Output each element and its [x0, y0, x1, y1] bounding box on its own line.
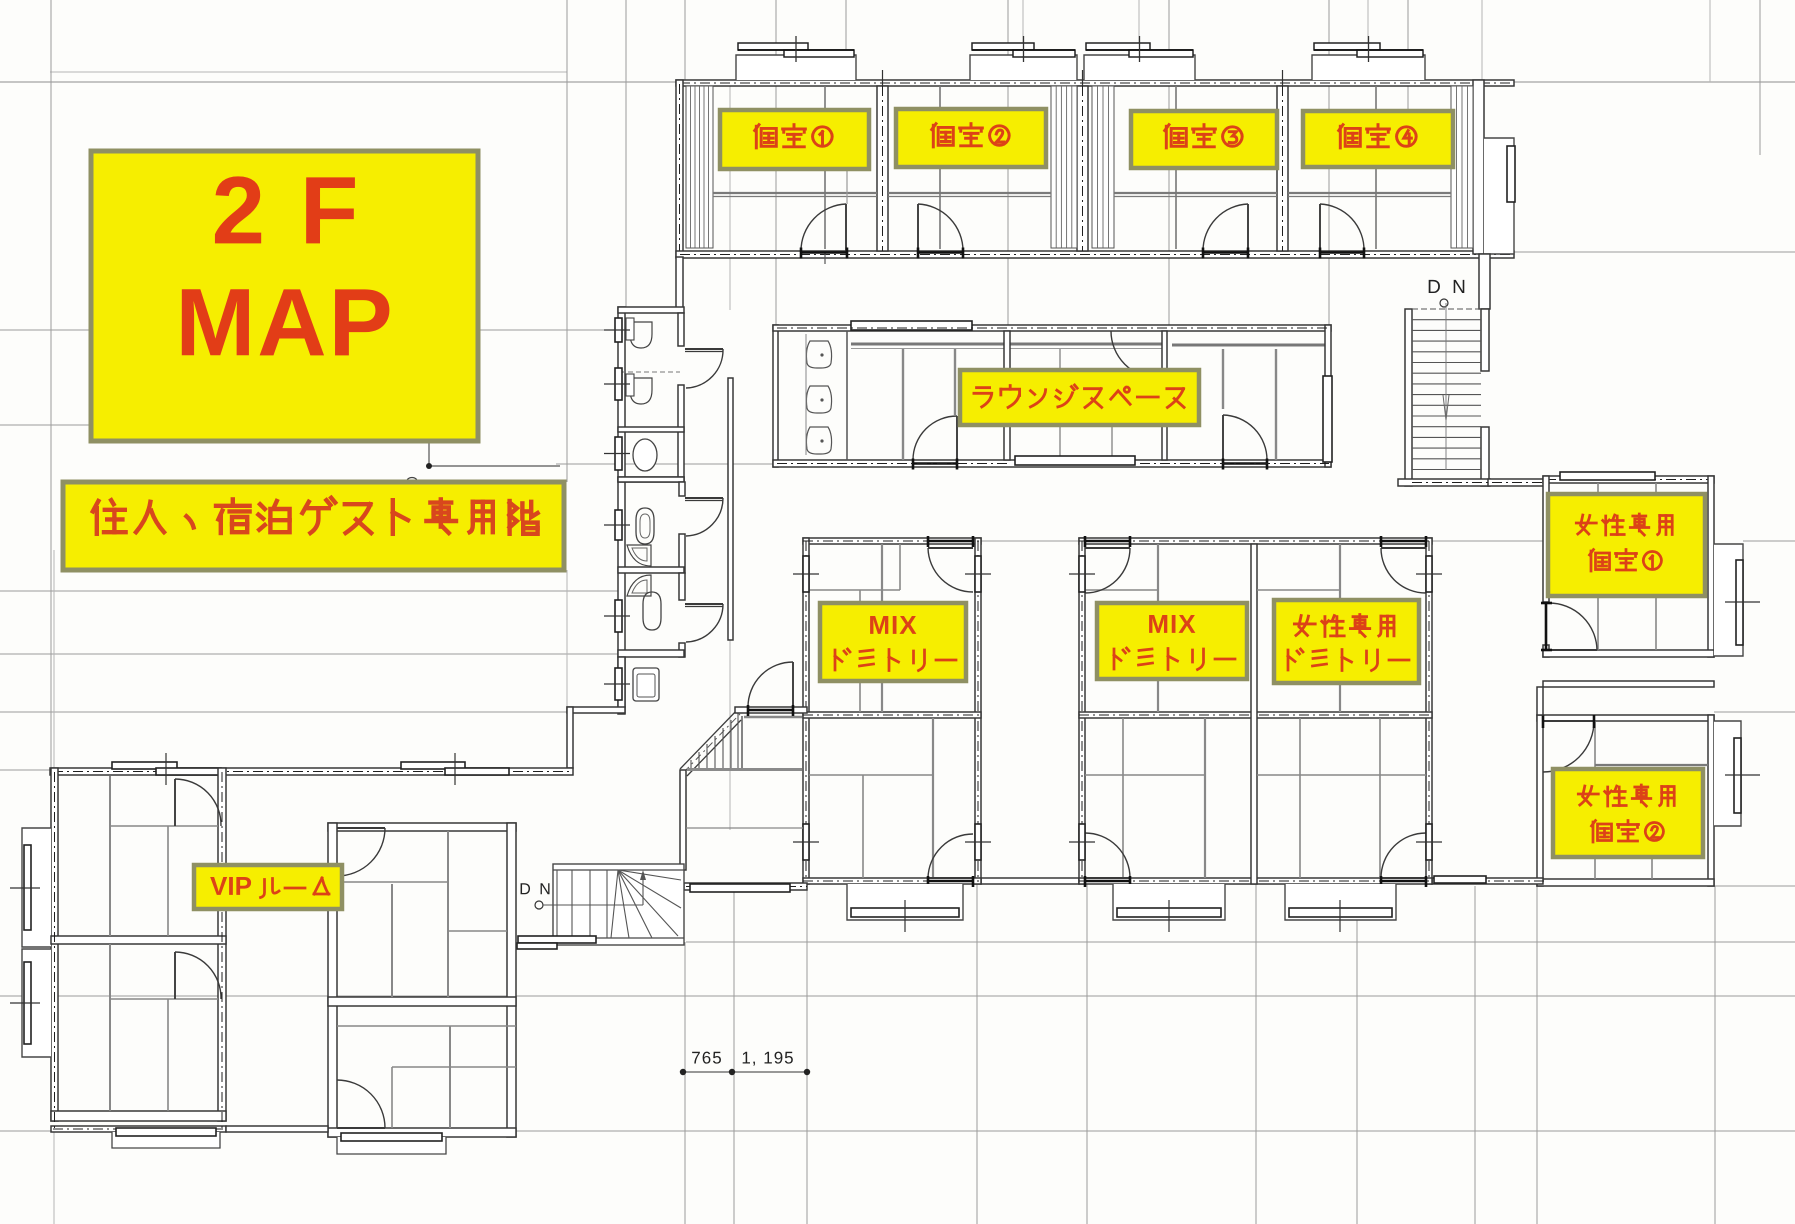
svg-text:MIX: MIX [868, 610, 917, 640]
svg-text:D N: D N [1427, 277, 1469, 298]
svg-text:MIX: MIX [1147, 609, 1196, 639]
svg-text:2 F: 2 F [212, 157, 363, 264]
svg-text:MAP: MAP [175, 269, 394, 376]
svg-text:765: 765 [691, 1048, 722, 1067]
svg-text:D N: D N [519, 881, 553, 898]
svg-text:VIP: VIP [210, 871, 252, 901]
svg-text:1, 195: 1, 195 [741, 1048, 794, 1067]
